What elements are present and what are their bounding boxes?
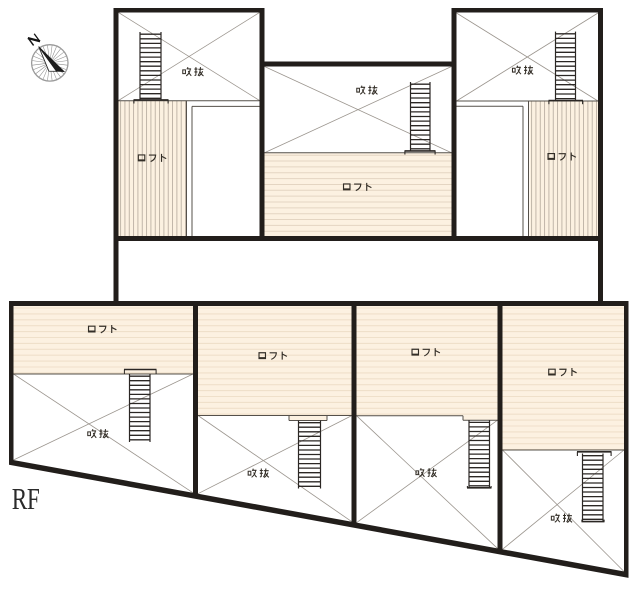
- svg-text:RF: RF: [12, 482, 40, 516]
